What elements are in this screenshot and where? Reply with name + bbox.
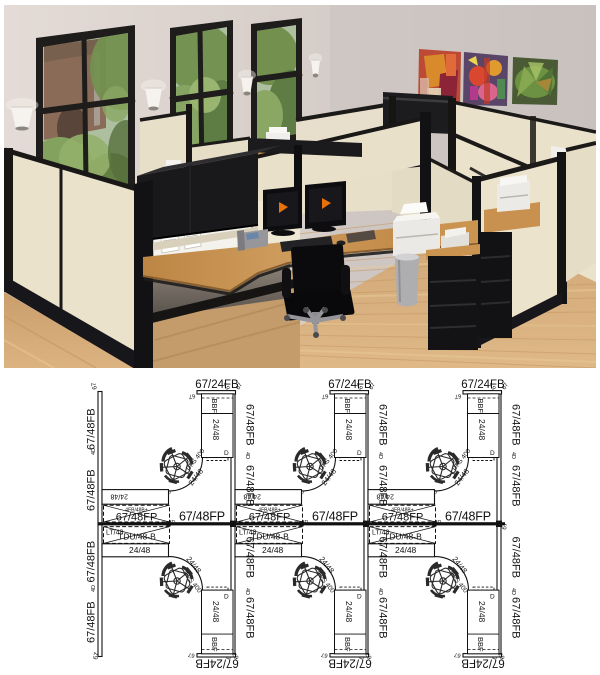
svg-text:BBF: BBF	[343, 637, 352, 652]
svg-text:4D: 4D	[510, 452, 516, 459]
svg-text:67/48FB: 67/48FB	[244, 537, 256, 579]
svg-text:67/24FB: 67/24FB	[461, 657, 505, 669]
svg-text:4D: 4D	[510, 588, 516, 595]
svg-text:67/48FB: 67/48FB	[377, 537, 389, 579]
svg-text:BBF: BBF	[343, 399, 352, 414]
svg-text:24/48: 24/48	[344, 419, 354, 441]
svg-text:67/24FB: 67/24FB	[195, 657, 239, 669]
svg-text:D: D	[357, 450, 362, 457]
svg-text:67/24FB: 67/24FB	[328, 379, 372, 391]
svg-text:D: D	[224, 450, 229, 457]
svg-text:67/24FB: 67/24FB	[195, 379, 239, 391]
svg-text:67/48FB: 67/48FB	[244, 404, 256, 446]
svg-text:67/48FB: 67/48FB	[244, 597, 256, 639]
svg-text:67/48FB: 67/48FB	[510, 404, 522, 446]
svg-text:67/48FB: 67/48FB	[244, 465, 256, 507]
svg-text:D: D	[490, 450, 495, 457]
svg-text:24/48: 24/48	[477, 419, 487, 441]
svg-text:TDU/48-B: TDU/48-B	[384, 532, 422, 542]
svg-text:67/48FB: 67/48FB	[510, 537, 522, 579]
svg-text:BBF: BBF	[210, 637, 219, 652]
svg-text:TDU/48-B: TDU/48-B	[118, 532, 156, 542]
svg-text:4D: 4D	[377, 452, 383, 459]
svg-text:TDU/48-B: TDU/48-B	[251, 532, 289, 542]
svg-text:24/48: 24/48	[344, 601, 354, 623]
svg-text:67/48FB: 67/48FB	[377, 404, 389, 446]
svg-text:67/48FP: 67/48FP	[312, 510, 358, 524]
svg-text:4D: 4D	[377, 588, 383, 595]
svg-text:4D: 4D	[244, 452, 250, 459]
svg-text:67/48FP: 67/48FP	[445, 510, 491, 524]
svg-text:67/48FP: 67/48FP	[116, 512, 158, 524]
svg-text:BBF: BBF	[476, 399, 485, 414]
svg-text:24/48: 24/48	[110, 493, 128, 500]
svg-text:4D: 4D	[91, 585, 97, 592]
svg-text:67/24FB: 67/24FB	[328, 657, 372, 669]
svg-text:D: D	[490, 594, 495, 601]
svg-text:24/48: 24/48	[477, 601, 487, 623]
svg-text:4D: 4D	[435, 520, 442, 526]
svg-text:67/48FB: 67/48FB	[510, 597, 522, 639]
svg-text:4D: 4D	[302, 520, 309, 526]
svg-text:4D: 4D	[244, 588, 250, 595]
svg-text:67/48FB: 67/48FB	[86, 541, 98, 583]
svg-text:67/48FB: 67/48FB	[377, 597, 389, 639]
svg-text:67/48FP: 67/48FP	[249, 512, 291, 524]
svg-text:24/48: 24/48	[129, 545, 151, 555]
svg-text:4D: 4D	[91, 448, 97, 455]
svg-text:67/48FP: 67/48FP	[179, 510, 225, 524]
svg-text:67/48FB: 67/48FB	[86, 469, 98, 511]
svg-text:24/48: 24/48	[211, 419, 221, 441]
svg-text:67/48FB: 67/48FB	[86, 408, 98, 450]
svg-text:BBF: BBF	[476, 637, 485, 652]
svg-text:67/48FB: 67/48FB	[510, 465, 522, 507]
svg-text:D: D	[357, 594, 362, 601]
svg-text:24/48: 24/48	[262, 545, 284, 555]
svg-text:67/24FB: 67/24FB	[461, 379, 505, 391]
svg-text:24/48: 24/48	[211, 601, 221, 623]
svg-text:D: D	[224, 594, 229, 601]
svg-text:4D: 4D	[169, 520, 176, 526]
svg-text:24/48: 24/48	[395, 545, 417, 555]
svg-text:67/48FP: 67/48FP	[382, 512, 424, 524]
svg-text:67/48FB: 67/48FB	[86, 601, 98, 643]
svg-text:67/48FB: 67/48FB	[377, 465, 389, 507]
svg-text:BBF: BBF	[210, 399, 219, 414]
